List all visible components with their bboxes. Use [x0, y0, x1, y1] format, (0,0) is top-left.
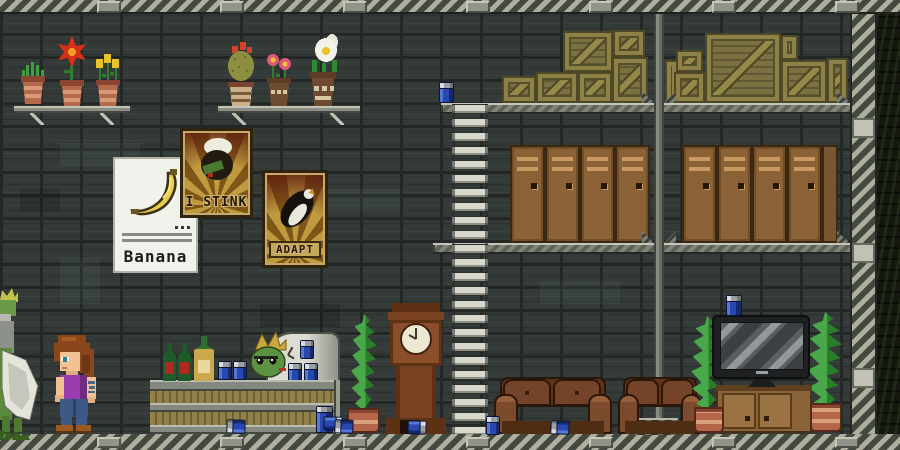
cabinet-door[interactable] — [758, 393, 792, 429]
crate[interactable] — [502, 76, 536, 103]
poster-dot — [187, 226, 190, 229]
poster-dot — [181, 226, 184, 229]
clock-body — [396, 366, 436, 418]
armchair[interactable] — [618, 377, 702, 434]
wine-label — [165, 362, 174, 374]
tv-brand-mark — [756, 371, 768, 374]
wall-tile-highlight — [540, 281, 620, 304]
cushion-button — [575, 391, 579, 395]
beer-mug[interactable] — [550, 420, 569, 435]
cushion-button — [525, 391, 529, 395]
crate[interactable] — [781, 35, 798, 60]
cabinet-door[interactable] — [722, 393, 756, 429]
adapt-banner: ADAPT — [269, 241, 321, 258]
potted-pink-flowers — [264, 50, 294, 106]
wall-tile-highlight — [60, 258, 100, 304]
couch-seat — [625, 421, 695, 434]
rock-edge — [877, 12, 900, 436]
wall-tile-highlight — [320, 189, 400, 212]
ceiling-plate — [343, 1, 367, 13]
game-scene: Banana I STINK ADAPT — [0, 0, 900, 450]
locker[interactable] — [615, 145, 650, 243]
ceiling-plate — [220, 1, 244, 13]
shelf-right — [218, 106, 360, 113]
floor-plate — [589, 437, 613, 448]
locker[interactable] — [717, 145, 752, 243]
beer-mug[interactable] — [726, 295, 742, 316]
crate[interactable] — [676, 50, 703, 72]
beer-mug[interactable] — [218, 361, 232, 380]
locker[interactable] — [545, 145, 580, 243]
counter-band — [150, 403, 340, 412]
ceiling-hazard-strip — [0, 0, 900, 14]
poster-rule — [122, 239, 192, 242]
crate[interactable] — [674, 72, 705, 103]
beer-mug[interactable] — [233, 361, 247, 380]
locker[interactable] — [787, 145, 822, 243]
locker[interactable] — [510, 145, 545, 243]
column-plate — [852, 368, 875, 388]
stink-figure-icon — [191, 133, 243, 191]
poster-stink[interactable]: I STINK — [180, 128, 253, 218]
floor-plate — [97, 437, 121, 448]
ladder[interactable] — [452, 104, 488, 434]
poster-banana-label: Banana — [115, 247, 196, 266]
poster-stink-label: I STINK — [183, 195, 250, 210]
wall-tile-shadow — [260, 304, 340, 327]
support-column — [654, 14, 664, 434]
tv-cabinet[interactable] — [716, 385, 812, 433]
shelf-left — [14, 106, 130, 113]
adapt-penguin-icon — [271, 179, 321, 239]
floor-hazard-strip — [0, 434, 900, 450]
crate[interactable] — [781, 60, 827, 103]
bartender-npc[interactable] — [246, 332, 298, 380]
beer-mug[interactable] — [486, 416, 500, 435]
tv-screen — [720, 322, 804, 370]
floor-plate — [835, 437, 859, 448]
counter-band — [150, 380, 340, 391]
locker[interactable] — [682, 145, 717, 243]
shelf-bracket — [232, 113, 246, 125]
poster-dot — [175, 226, 178, 229]
crate[interactable] — [536, 72, 578, 103]
ceiling-plate — [97, 1, 121, 13]
grandfather-clock[interactable] — [386, 303, 446, 434]
potted-red-flower — [56, 36, 88, 106]
crate[interactable] — [613, 30, 645, 57]
shelf-bracket — [330, 113, 344, 125]
crate[interactable] — [563, 31, 613, 72]
beer-mug[interactable] — [439, 82, 454, 103]
shelf-bracket — [30, 113, 44, 125]
clock-cap — [392, 303, 440, 312]
potted-grass — [18, 62, 48, 106]
player-character[interactable] — [52, 335, 98, 433]
floor-plate — [712, 437, 736, 448]
plant-pot — [810, 403, 842, 432]
locker[interactable] — [580, 145, 615, 243]
shelf-bracket — [100, 113, 114, 125]
wall-tile-shadow — [20, 189, 60, 212]
locker-panel[interactable] — [822, 145, 838, 243]
beer-mug[interactable] — [407, 420, 426, 435]
floor-plate — [220, 437, 244, 448]
potted-cactus — [224, 42, 258, 106]
beer-mug[interactable] — [226, 419, 245, 434]
bird-npc[interactable] — [0, 288, 40, 440]
floor-plate — [466, 437, 490, 448]
potted-lily — [306, 34, 340, 106]
ceiling-plate — [712, 1, 736, 13]
tv[interactable] — [712, 315, 810, 379]
locker[interactable] — [752, 145, 787, 243]
ceiling-plate — [466, 1, 490, 13]
clock-cap — [388, 312, 444, 320]
champagne-label — [198, 360, 210, 373]
beer-mug[interactable] — [334, 419, 353, 434]
column-plate — [852, 243, 875, 263]
clock-face — [400, 323, 432, 355]
plant-pot — [694, 407, 724, 433]
beer-mug[interactable] — [300, 340, 314, 359]
floor-plate — [343, 437, 367, 448]
ceiling-plate — [835, 1, 859, 13]
wine-label — [180, 362, 189, 374]
ceiling-plate — [589, 1, 613, 13]
poster-rule — [122, 233, 192, 236]
crate[interactable] — [578, 72, 612, 103]
potted-tulips — [92, 52, 124, 106]
poster-adapt-label: ADAPT — [271, 243, 319, 256]
poster-adapt[interactable]: ADAPT — [262, 170, 328, 268]
banana-icon — [127, 167, 187, 223]
crate[interactable] — [705, 33, 781, 103]
column-plate — [852, 118, 875, 138]
